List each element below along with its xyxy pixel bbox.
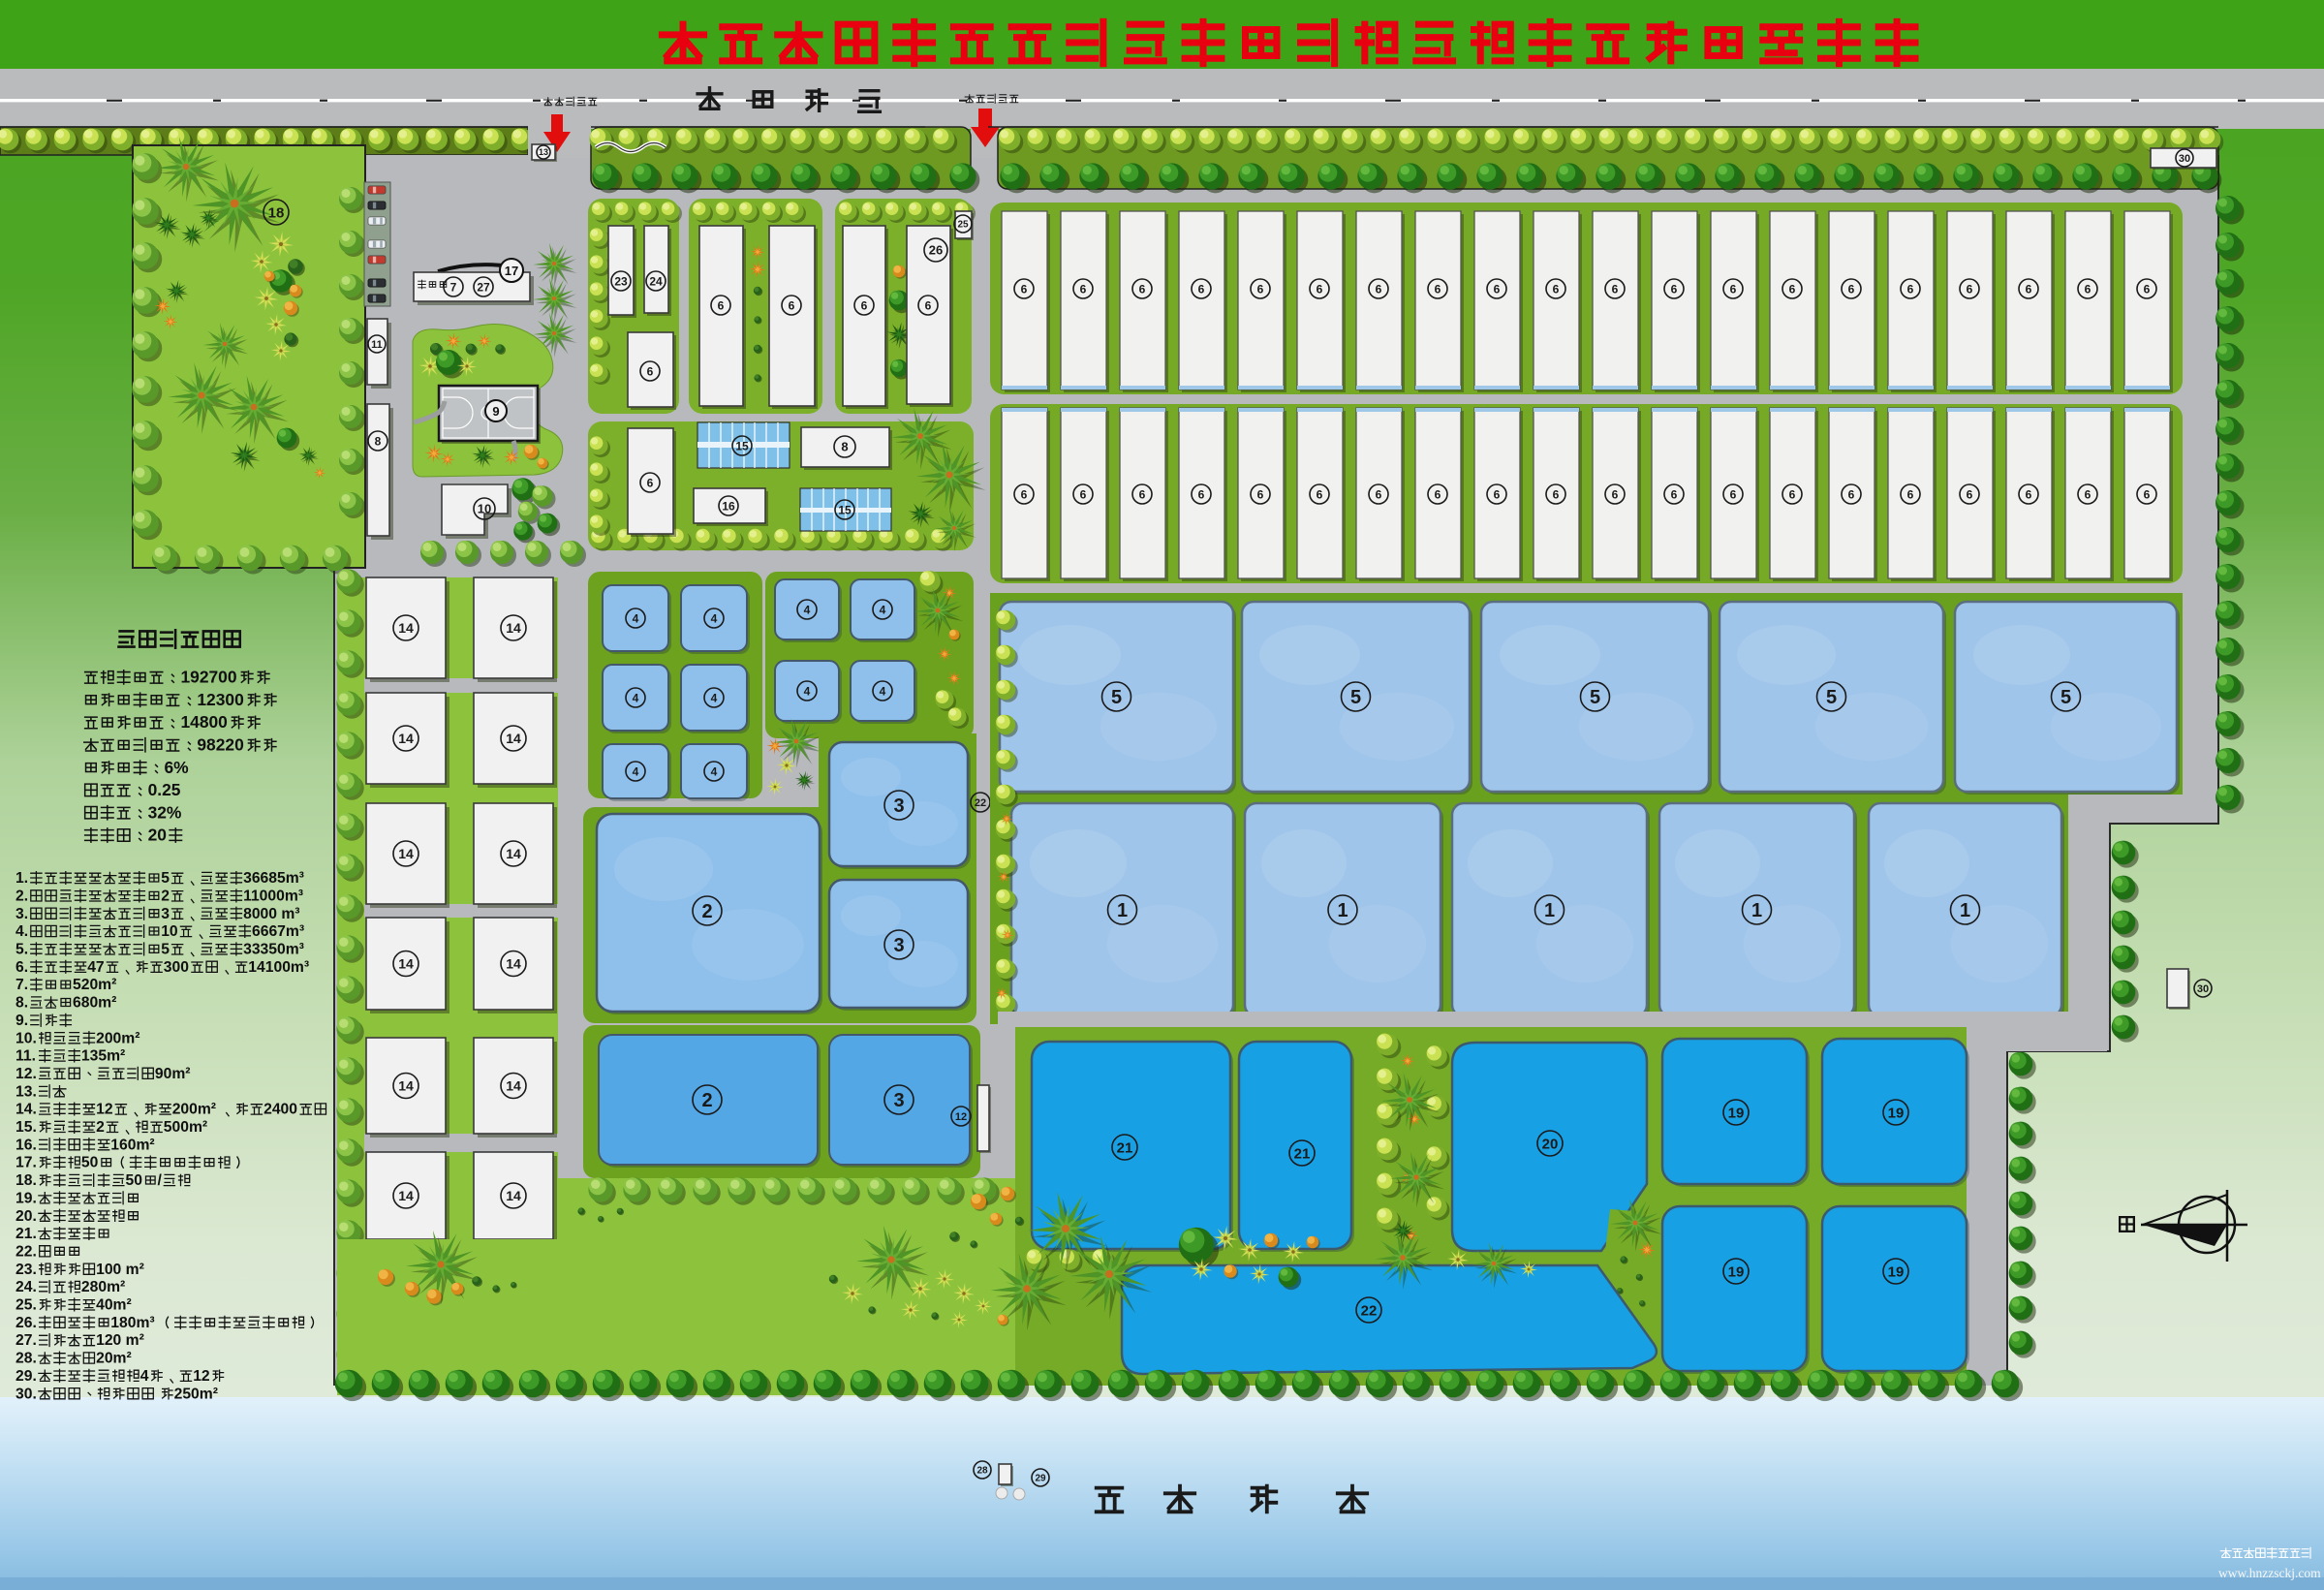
svg-text:6: 6 [1612,282,1619,296]
svg-text:14: 14 [506,731,521,746]
svg-text:6: 6 [1198,487,1205,501]
svg-text:47: 47 [87,959,105,976]
svg-text:1: 1 [1960,900,1970,921]
svg-text:180m³: 180m³ [110,1315,154,1331]
svg-text:8: 8 [375,434,382,448]
svg-text:280m²: 280m² [81,1279,125,1295]
svg-text:33350m³: 33350m³ [243,942,304,958]
svg-text:19: 19 [1728,1263,1745,1280]
svg-text:23.: 23. [15,1262,37,1278]
svg-text:10: 10 [161,923,178,940]
svg-text:6667m³: 6667m³ [252,923,304,940]
svg-text:250m²: 250m² [174,1386,218,1402]
svg-text:4: 4 [880,684,886,698]
svg-text:28.: 28. [15,1351,37,1367]
svg-text:21: 21 [1117,1139,1133,1156]
svg-text:14: 14 [398,731,414,746]
svg-text:4.: 4. [15,923,28,940]
svg-text:6: 6 [1376,487,1382,501]
svg-text:12.: 12. [15,1066,37,1082]
svg-text:14: 14 [506,846,521,861]
svg-text:21.: 21. [15,1226,37,1242]
svg-text:98220: 98220 [197,735,243,755]
svg-text:6: 6 [1317,487,1323,501]
svg-text:13: 13 [539,147,548,157]
svg-text:8.: 8. [15,995,28,1012]
svg-text:6: 6 [1671,487,1678,501]
svg-text:2: 2 [161,889,170,905]
svg-text:29.: 29. [15,1368,37,1385]
svg-text:14: 14 [506,956,521,972]
svg-text:6: 6 [647,476,654,489]
svg-text:5: 5 [1111,687,1122,708]
svg-text:30: 30 [2179,153,2190,165]
svg-text:9.: 9. [15,1013,28,1029]
svg-text:30.: 30. [15,1386,37,1402]
svg-text:2400: 2400 [263,1102,297,1118]
svg-text:6: 6 [861,298,868,312]
svg-text:4: 4 [711,764,718,778]
svg-text:3.: 3. [15,906,28,922]
svg-text:14: 14 [398,846,414,861]
svg-text:6: 6 [2085,487,2092,501]
svg-text:15: 15 [838,503,852,516]
svg-text:36685m³: 36685m³ [243,870,304,887]
svg-text:6: 6 [2144,282,2151,296]
svg-text:14: 14 [398,1078,414,1094]
svg-text:6: 6 [1198,282,1205,296]
svg-text:3: 3 [893,935,904,956]
svg-text:192700: 192700 [181,668,237,687]
svg-text:14: 14 [506,1078,521,1094]
svg-text:17.: 17. [15,1155,37,1171]
svg-text:25: 25 [957,220,969,231]
svg-text:50: 50 [81,1155,99,1171]
svg-text:6: 6 [1553,487,1560,501]
svg-text:6: 6 [1553,282,1560,296]
svg-text:6: 6 [718,298,725,312]
svg-text:6: 6 [2144,487,2151,501]
svg-text:6: 6 [2026,487,2032,501]
svg-text:19.: 19. [15,1190,37,1206]
svg-text:6: 6 [1907,282,1914,296]
svg-text:17: 17 [505,264,518,278]
svg-text:19: 19 [1888,1263,1905,1280]
svg-text:4: 4 [140,1368,149,1385]
svg-text:16.: 16. [15,1137,37,1153]
svg-text:4: 4 [711,691,718,704]
svg-text:6: 6 [1612,487,1619,501]
svg-text:1: 1 [1751,900,1762,921]
svg-text:6: 6 [1671,282,1678,296]
svg-text:6: 6 [1139,282,1146,296]
svg-text:12: 12 [955,1111,967,1123]
svg-text:200m²: 200m² [172,1102,216,1118]
svg-text:680m²: 680m² [73,995,116,1012]
svg-text:5: 5 [1590,687,1600,708]
svg-text:15: 15 [735,439,749,452]
svg-text:21: 21 [1294,1145,1311,1162]
svg-text:2.: 2. [15,889,28,905]
svg-text:6: 6 [1080,282,1087,296]
svg-text:6: 6 [1317,282,1323,296]
svg-text:0.25: 0.25 [148,780,181,799]
svg-text:6: 6 [1139,487,1146,501]
svg-text:27: 27 [477,280,490,294]
svg-text:6: 6 [1730,487,1737,501]
svg-text:14.: 14. [15,1102,37,1118]
svg-text:4: 4 [633,611,639,625]
svg-text:14: 14 [506,620,521,636]
svg-text:14800: 14800 [181,712,228,732]
svg-text:6: 6 [1080,487,1087,501]
svg-text:20m²: 20m² [96,1351,132,1367]
svg-text:3: 3 [893,1090,904,1111]
svg-text:25.: 25. [15,1297,37,1314]
svg-text:20: 20 [148,826,167,845]
svg-text:5.: 5. [15,942,28,958]
svg-text:500m²: 500m² [164,1119,207,1136]
svg-text:6: 6 [1257,487,1264,501]
svg-text:6: 6 [647,364,654,378]
svg-text:14: 14 [398,1188,414,1203]
svg-text:1: 1 [1544,900,1555,921]
svg-text:6: 6 [2085,282,2092,296]
svg-text:24: 24 [649,274,663,288]
svg-text:6: 6 [1848,487,1855,501]
svg-text:520m²: 520m² [73,977,116,993]
svg-text:7.: 7. [15,977,28,993]
svg-text:5: 5 [1350,687,1361,708]
svg-text:1.: 1. [15,870,28,887]
svg-text:4: 4 [804,684,811,698]
svg-text:1: 1 [1117,900,1128,921]
svg-text:19: 19 [1728,1105,1745,1121]
svg-text:24.: 24. [15,1279,37,1295]
svg-text:6: 6 [1494,282,1501,296]
svg-text:11: 11 [371,339,383,351]
svg-text:3: 3 [161,906,170,922]
svg-text:5: 5 [161,942,170,958]
svg-text:11000m³: 11000m³ [243,889,303,905]
svg-text:20.: 20. [15,1208,37,1225]
svg-text:22: 22 [1361,1302,1378,1319]
svg-text:50: 50 [126,1172,143,1189]
svg-text:www.hnzzsckj.com: www.hnzzsckj.com [2218,1566,2321,1580]
svg-text:120 m²: 120 m² [96,1332,144,1349]
svg-text:6: 6 [1376,282,1382,296]
svg-text:6: 6 [1494,487,1501,501]
svg-text:6: 6 [1730,282,1737,296]
svg-text:135m²: 135m² [81,1048,125,1065]
svg-text:13.: 13. [15,1083,37,1100]
svg-text:23: 23 [614,274,628,288]
svg-text:22.: 22. [15,1244,37,1261]
svg-text:5: 5 [161,870,170,887]
svg-text:10.: 10. [15,1030,37,1046]
svg-text:18.: 18. [15,1172,37,1189]
svg-text:6: 6 [925,298,932,312]
svg-text:300: 300 [164,959,189,976]
svg-text:6: 6 [1789,282,1796,296]
svg-text:18: 18 [268,204,285,221]
svg-text:4: 4 [711,611,718,625]
svg-text:6: 6 [1435,487,1441,501]
svg-text:22: 22 [975,797,986,809]
svg-text:4: 4 [633,764,639,778]
svg-text:4: 4 [880,603,886,616]
svg-text:6: 6 [1435,282,1441,296]
svg-text:2: 2 [701,1090,712,1111]
svg-text:11.: 11. [15,1048,36,1065]
svg-text:14: 14 [398,956,414,972]
svg-text:6: 6 [1257,282,1264,296]
svg-text:8000 m³: 8000 m³ [243,906,299,922]
svg-text:4: 4 [633,691,639,704]
svg-text:32%: 32% [148,802,182,822]
svg-text:6: 6 [1789,487,1796,501]
svg-text:28: 28 [976,1466,988,1477]
svg-text:15.: 15. [15,1119,37,1136]
svg-text:7: 7 [450,280,457,294]
svg-text:5: 5 [2061,687,2071,708]
svg-text:30: 30 [2197,983,2209,995]
svg-text:8: 8 [841,440,848,454]
svg-text:40m²: 40m² [96,1297,132,1314]
svg-text:2: 2 [701,901,712,922]
svg-text:14100m³: 14100m³ [248,959,309,976]
svg-text:1: 1 [1337,900,1348,921]
svg-text:6: 6 [789,298,795,312]
svg-text:6: 6 [1021,487,1028,501]
svg-text:160m²: 160m² [110,1137,154,1153]
svg-text:16: 16 [722,499,735,513]
svg-text:26.: 26. [15,1315,37,1331]
svg-text:90m²: 90m² [155,1066,191,1082]
svg-text:/: / [158,1172,163,1189]
svg-text:9: 9 [492,404,499,419]
svg-text:6.: 6. [15,959,28,976]
svg-text:6: 6 [1907,487,1914,501]
svg-text:19: 19 [1888,1105,1905,1121]
svg-text:20: 20 [1542,1136,1559,1152]
svg-text:6: 6 [1848,282,1855,296]
svg-text:6%: 6% [165,758,189,777]
svg-text:12: 12 [96,1102,113,1118]
svg-text:6: 6 [1967,282,1973,296]
svg-text:4: 4 [804,603,811,616]
svg-text:5: 5 [1826,687,1837,708]
svg-text:3: 3 [893,795,904,817]
svg-text:200m²: 200m² [96,1030,139,1046]
svg-text:2: 2 [96,1119,105,1136]
svg-text:26: 26 [929,243,943,258]
svg-text:100 m²: 100 m² [96,1262,144,1278]
svg-text:6: 6 [2026,282,2032,296]
svg-text:6: 6 [1967,487,1973,501]
svg-text:29: 29 [1035,1474,1046,1484]
svg-text:12300: 12300 [197,690,243,709]
svg-text:6: 6 [1021,282,1028,296]
svg-text:14: 14 [506,1188,521,1203]
svg-text:12: 12 [193,1368,210,1385]
svg-text:27.: 27. [15,1332,37,1349]
svg-text:10: 10 [478,502,491,516]
svg-text:14: 14 [398,620,414,636]
